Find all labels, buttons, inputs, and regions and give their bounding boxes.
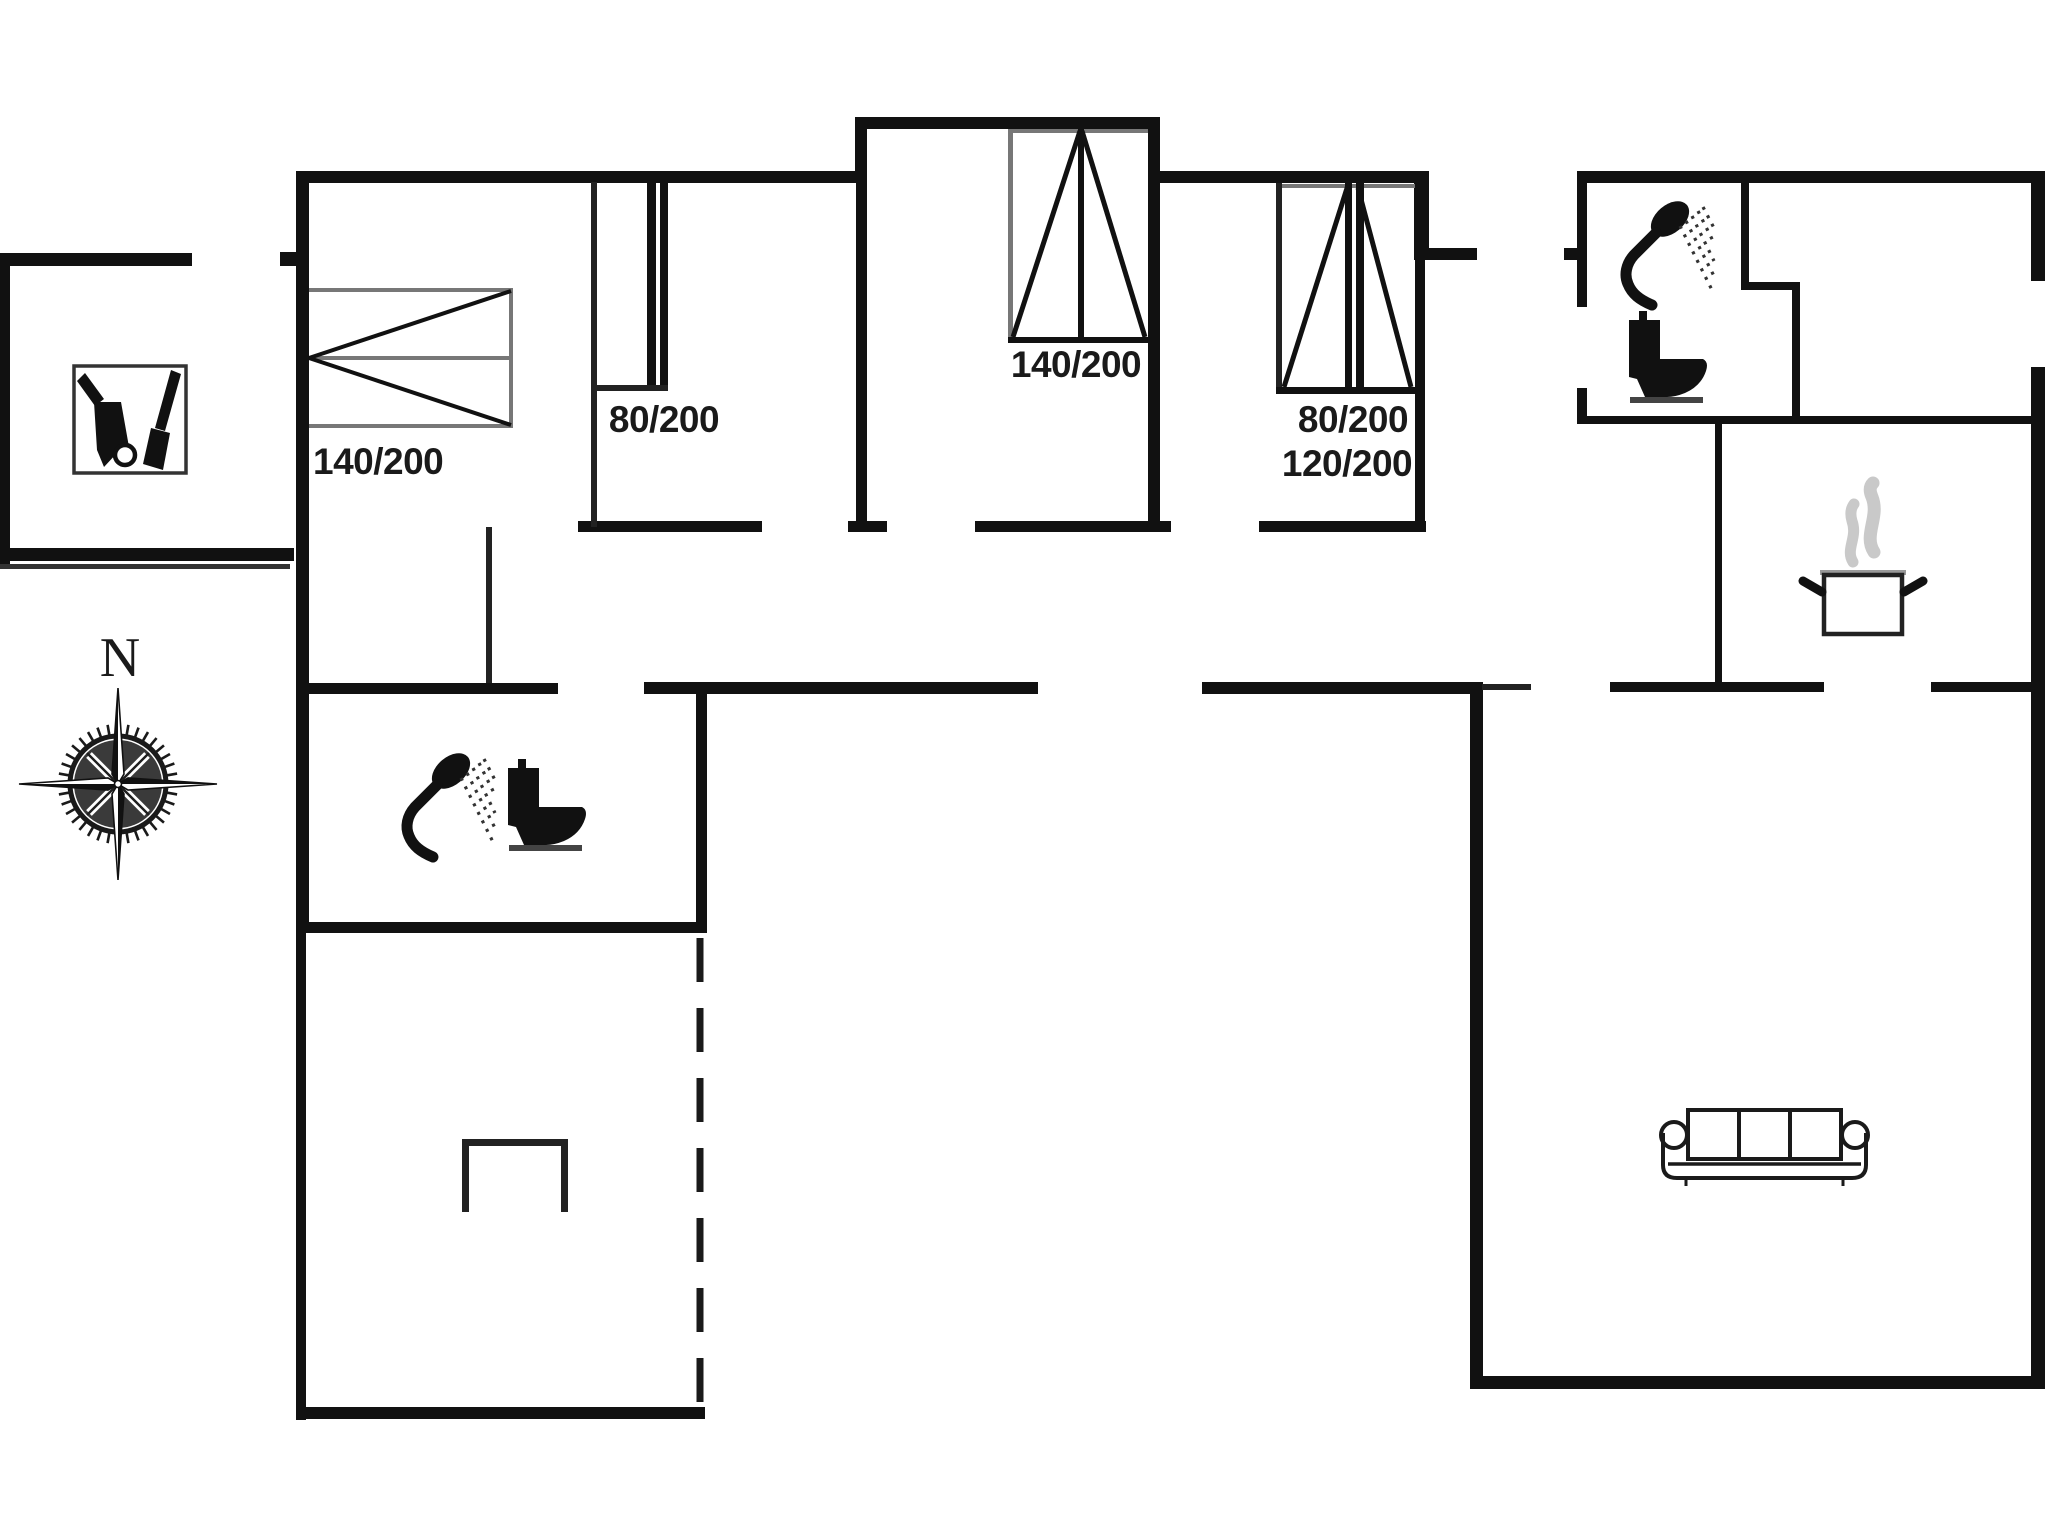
svg-text:80/200: 80/200 [609, 399, 719, 440]
svg-text:120/200: 120/200 [1282, 443, 1412, 484]
svg-text:140/200: 140/200 [313, 441, 443, 482]
svg-text:140/200: 140/200 [1011, 344, 1141, 385]
svg-text:80/200: 80/200 [1298, 399, 1408, 440]
svg-text:N: N [100, 627, 140, 689]
